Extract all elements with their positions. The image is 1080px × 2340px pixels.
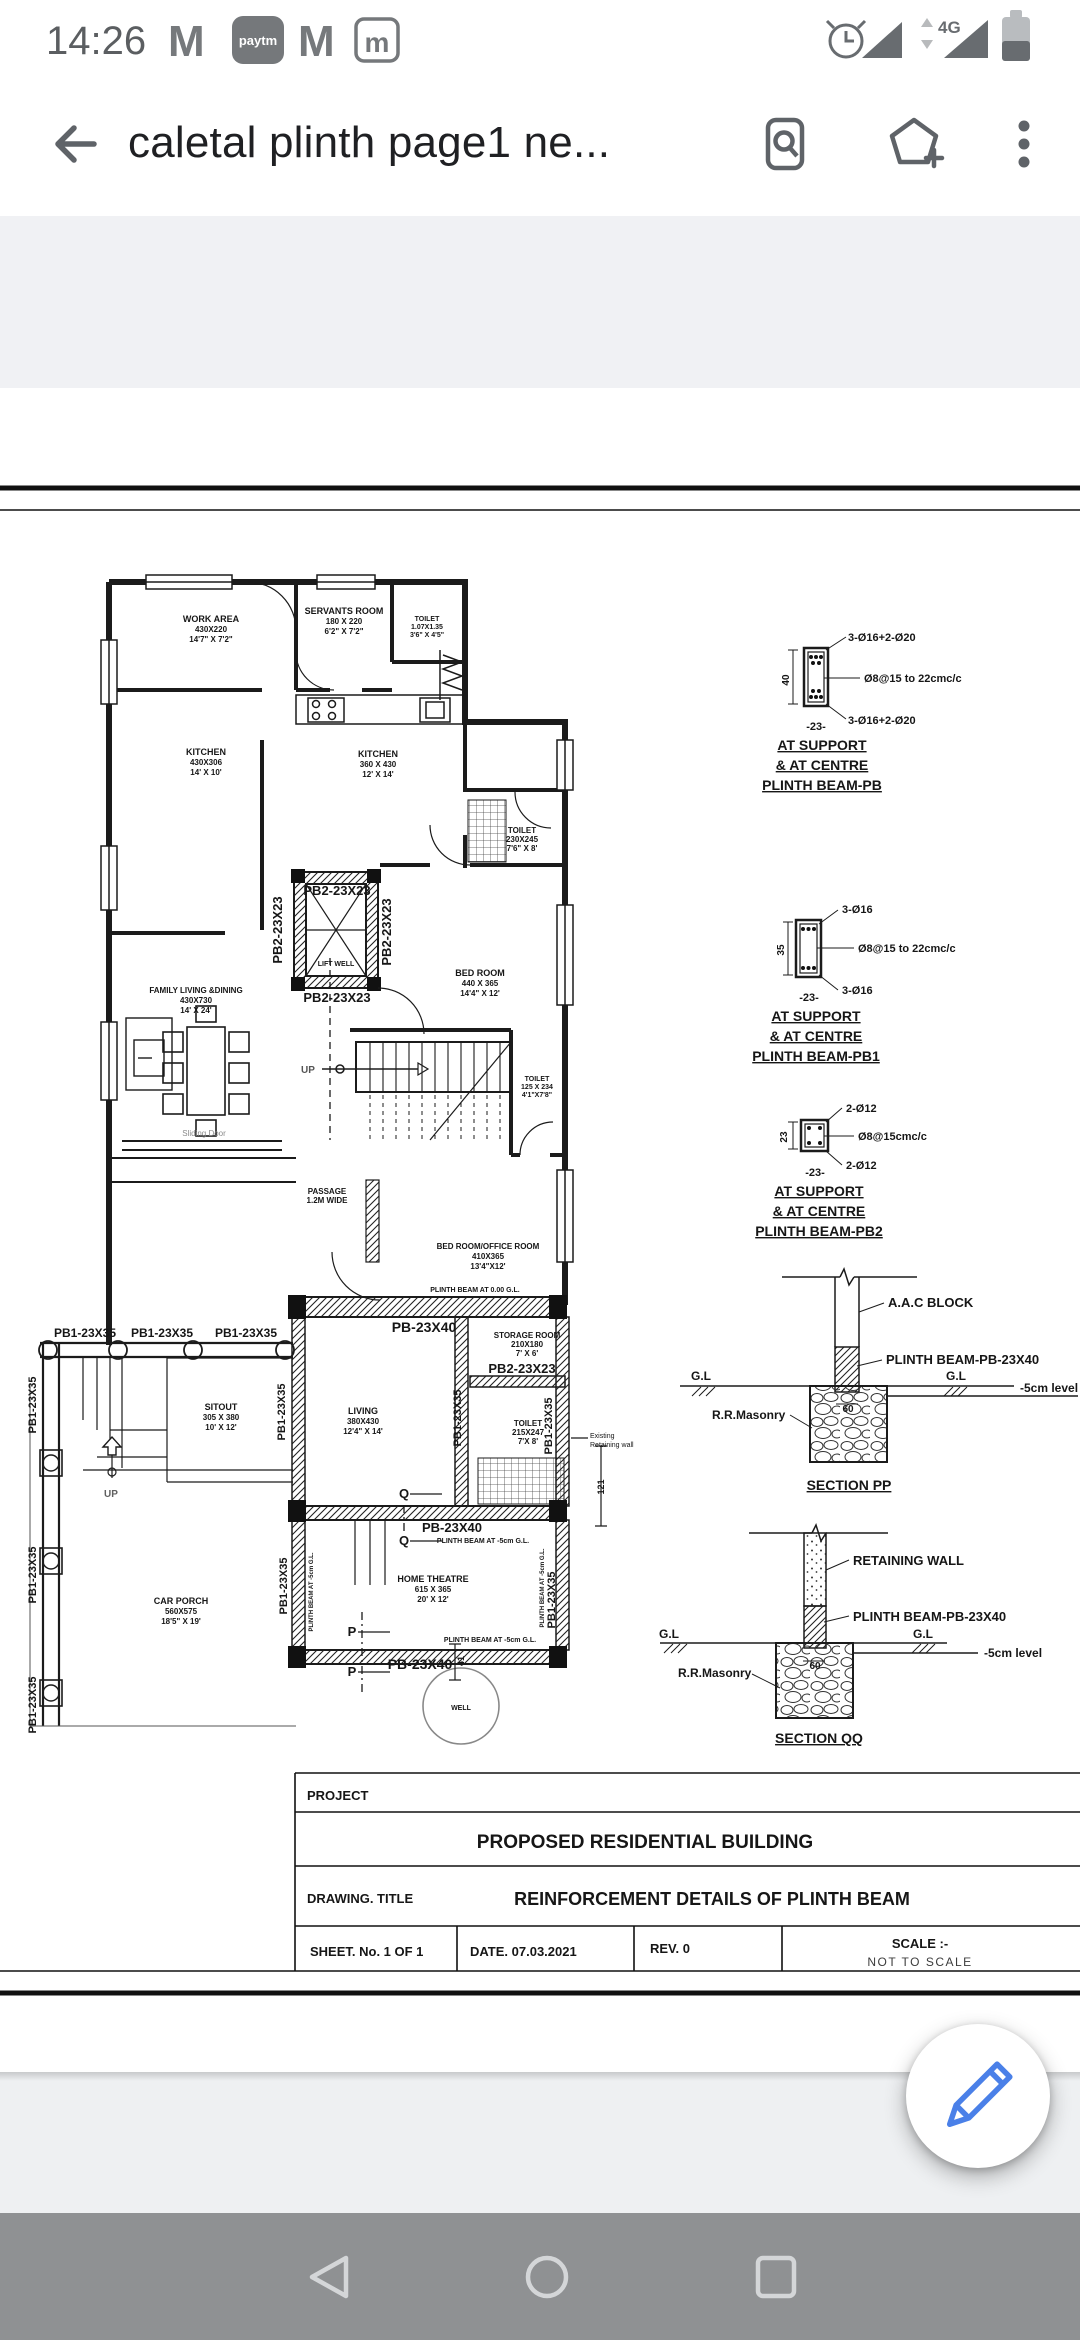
document-search-icon xyxy=(768,120,802,168)
drawing-label: -5cm level xyxy=(984,1646,1042,1660)
viewer-background-top xyxy=(0,216,1080,388)
drawing-label: LIFT WELL xyxy=(318,961,355,968)
find-in-document-button[interactable] xyxy=(756,114,816,174)
drawing-label: 560X575 xyxy=(165,1607,198,1616)
drawing-label: PLINTH BEAM AT 0.00 G.L. xyxy=(430,1287,520,1294)
document-title: caletal plinth page1 ne... xyxy=(128,118,610,168)
drawing-label: -23- xyxy=(806,721,826,733)
status-time: 14:26 xyxy=(46,19,146,63)
nav-recents-button[interactable] xyxy=(758,2258,794,2296)
drawing-label: 380X430 xyxy=(347,1417,380,1426)
drawing-label: 3-Ø16+2-Ø20 xyxy=(848,632,916,644)
phone-screen: 14:26 M paytm M m 4G caletal p xyxy=(0,0,1080,2340)
drawing-label: G.L xyxy=(946,1369,966,1383)
drawing-label: UP xyxy=(104,1489,118,1500)
drawing-label: 14' X 24' xyxy=(180,1006,211,1015)
drawing-label: 3-Ø16 xyxy=(842,985,873,997)
drawing-label: KITCHEN xyxy=(358,749,398,759)
shortcut-add-icon xyxy=(892,120,942,166)
status-bar: 14:26 M paytm M m 4G xyxy=(0,0,1080,72)
pencil-icon xyxy=(943,2064,1009,2130)
wash-unit xyxy=(126,1018,172,1090)
drawing-label: 430X220 xyxy=(195,625,228,634)
floor-plan-drawing: WORK AREA430X22014'7" X 7'2"SERVANTS ROO… xyxy=(0,388,1080,2072)
arrow-left-icon xyxy=(58,128,94,160)
drawing-label: PASSAGE xyxy=(308,1187,347,1196)
drawing-label: Ø8@15cmc/c xyxy=(858,1131,927,1143)
drawing-label: -23- xyxy=(799,992,819,1004)
drawing-label: 60 xyxy=(809,1661,821,1672)
drawing-label: 125 X 234 xyxy=(521,1084,553,1091)
drawing-label: PB1-23X35 xyxy=(452,1390,464,1447)
drawing-label: TOILET xyxy=(514,1419,542,1428)
drawing-label: 7'6" X 8' xyxy=(507,844,538,853)
drawing-label: 230X245 xyxy=(506,835,539,844)
drawing-label: CAR PORCH xyxy=(154,1596,209,1606)
drawing-label: 210X180 xyxy=(511,1340,544,1349)
drawing-label: FAMILY LIVING &DINING xyxy=(149,986,242,995)
drawing-label: 410X365 xyxy=(472,1252,505,1261)
drawing-label: 4'1"X7'8" xyxy=(522,1092,552,1099)
drawing-label: PLINTH BEAM-PB2 xyxy=(755,1223,883,1239)
drawing-label: Retaining wall xyxy=(590,1442,634,1449)
drawing-label: BED ROOM xyxy=(455,968,505,978)
drawing-label: 2-Ø12 xyxy=(846,1103,877,1115)
drawing-label: PLINTH BEAM AT -5cm G.L. xyxy=(309,1552,315,1631)
drawing-labels: WORK AREA430X22014'7" X 7'2"SERVANTS ROO… xyxy=(27,606,1078,1969)
drawing-label: PROJECT xyxy=(307,1788,368,1803)
add-shortcut-button[interactable] xyxy=(884,112,950,176)
drawing-label: STORAGE ROOM xyxy=(494,1331,561,1340)
stairs xyxy=(322,1042,511,1140)
drawing-label: PB2-23X23 xyxy=(303,883,370,898)
drawing-label: 12'4" X 14' xyxy=(343,1427,383,1436)
arrows-updown-icon xyxy=(921,18,933,49)
mail-badge-icon: m xyxy=(356,19,398,61)
nav-home-button[interactable] xyxy=(528,2258,566,2296)
drawing-label: SHEET. No. 1 OF 1 xyxy=(310,1944,423,1959)
network-type-label: 4G xyxy=(938,18,961,37)
drawing-label: 615 X 365 xyxy=(415,1585,452,1594)
drawing-label: RETAINING WALL xyxy=(853,1553,964,1568)
drawing-label: Q xyxy=(399,1533,409,1548)
drawing-label: P xyxy=(348,1624,357,1639)
drawing-label: -23- xyxy=(805,1167,825,1179)
paytm-icon: paytm xyxy=(232,16,284,64)
drawing-label: 1.07X1.35 xyxy=(411,624,443,631)
drawing-label: R.R.Masonry xyxy=(678,1666,752,1680)
drawing-label: WORK AREA xyxy=(183,614,240,624)
drawing-label: DRAWING. TITLE xyxy=(307,1891,413,1906)
overflow-menu-button[interactable] xyxy=(1002,114,1046,174)
drawing-label: 40 xyxy=(781,674,792,686)
drawing-label: PB1-23X35 xyxy=(215,1326,277,1340)
drawing-label: PB2-23X23 xyxy=(270,896,285,963)
drawing-label: NOT TO SCALE xyxy=(867,1955,972,1969)
gmail-icon: M xyxy=(168,17,205,66)
drawing-label: 7' X 6' xyxy=(516,1349,539,1358)
drawing-label: AT SUPPORT xyxy=(777,737,867,753)
drawing-label: R.R.Masonry xyxy=(712,1408,786,1422)
drawing-label: 13'4"X12' xyxy=(470,1262,505,1271)
drawing-label: P xyxy=(348,1664,357,1679)
drawing-label: PLINTH BEAM-PB-23X40 xyxy=(886,1352,1039,1367)
drawing-label: Sliding Door xyxy=(182,1129,226,1138)
drawing-label: Ø8@15 to 22cmc/c xyxy=(858,943,956,955)
drawing-label: LIVING xyxy=(348,1406,378,1416)
drawing-label: PB1-23X35 xyxy=(27,1377,39,1434)
drawing-label: PB1-23X35 xyxy=(276,1384,288,1441)
drawing-label: 60 xyxy=(842,1404,854,1415)
drawing-label: 18'5" X 19' xyxy=(161,1617,201,1626)
drawing-label: SCALE :- xyxy=(892,1936,948,1951)
drawing-label: SECTION QQ xyxy=(775,1730,863,1746)
drawing-label: 12' X 14' xyxy=(362,770,393,779)
drawing-label: PB1-23X35 xyxy=(278,1558,290,1615)
drawing-label: 3'6" X 4'5" xyxy=(410,632,444,639)
entry-steps xyxy=(83,1358,293,1482)
back-button[interactable] xyxy=(44,116,104,172)
drawing-label: TOILET xyxy=(525,1076,550,1083)
drawing-label: 7'X 8' xyxy=(518,1437,538,1446)
drawing-label: PB1-23X35 xyxy=(131,1326,193,1340)
sheet-border xyxy=(0,488,1080,1993)
drawing-label: 14'4" X 12' xyxy=(460,989,500,998)
drawing-label: PB-23X40 xyxy=(392,1319,457,1335)
drawing-label: 41 xyxy=(456,1656,466,1666)
drawing-label: Q xyxy=(399,1486,409,1501)
drawing-label: KITCHEN xyxy=(186,747,226,757)
drawing-label: 430X306 xyxy=(190,758,223,767)
drawing-label: SERVANTS ROOM xyxy=(305,606,384,616)
drawing-label: 23 xyxy=(779,1131,790,1143)
battery-icon xyxy=(1002,10,1030,61)
drawing-label: PB1-23X35 xyxy=(546,1572,558,1629)
drawing-label: PB2-23X23 xyxy=(379,898,394,965)
floor-plan xyxy=(30,575,607,1744)
drawing-label: 3-Ø16+2-Ø20 xyxy=(848,715,916,727)
nav-bar xyxy=(0,2213,1080,2340)
drawing-label: PLINTH BEAM-PB-23X40 xyxy=(853,1609,1006,1624)
signal-icon xyxy=(862,22,902,58)
drawing-label: Ø8@15 to 22cmc/c xyxy=(864,673,962,685)
drawing-label: & AT CENTRE xyxy=(773,1203,866,1219)
drawing-label: 10' X 12' xyxy=(205,1423,236,1432)
alarm-icon xyxy=(827,21,865,57)
drawing-label: PLINTH BEAM-PB xyxy=(762,777,882,793)
drawing-label: HOME THEATRE xyxy=(397,1574,468,1584)
drawing-label: G.L xyxy=(913,1627,933,1641)
drawing-label: REV. 0 xyxy=(650,1941,690,1956)
drawing-label: PB-23X40 xyxy=(422,1520,482,1535)
drawing-label: 20' X 12' xyxy=(417,1595,448,1604)
drawing-label: SITOUT xyxy=(205,1402,238,1412)
drawing-label: 180 X 220 xyxy=(326,617,363,626)
drawing-label: A.A.C BLOCK xyxy=(888,1295,974,1310)
drawing-label: G.L xyxy=(691,1369,711,1383)
drawing-label: PB1-23X35 xyxy=(543,1398,555,1455)
drawing-label: 305 X 380 xyxy=(203,1413,240,1422)
svg-text:paytm: paytm xyxy=(239,33,277,48)
drawing-label: REINFORCEMENT DETAILS OF PLINTH BEAM xyxy=(514,1889,910,1909)
drawing-label: PLINTH BEAM AT -5cm G.L. xyxy=(437,1538,529,1545)
gmail-icon-2: M xyxy=(298,17,335,66)
drawing-label: 430X730 xyxy=(180,996,213,1005)
drawing-label: UP xyxy=(301,1065,315,1076)
drawing-label: & AT CENTRE xyxy=(770,1028,863,1044)
drawing-label: TOILET xyxy=(415,616,440,623)
drawing-label: PROPOSED RESIDENTIAL BUILDING xyxy=(477,1832,813,1853)
drawing-label: PB1-23X35 xyxy=(54,1326,116,1340)
drawing-label: PB-23X40 xyxy=(388,1656,453,1672)
drawing-label: -5cm level xyxy=(1020,1381,1078,1395)
drawing-label: Existing xyxy=(590,1433,615,1440)
drawing-label: PLINTH BEAM AT -5cm G.L. xyxy=(540,1548,546,1627)
drawing-label: & AT CENTRE xyxy=(776,757,869,773)
drawing-label: AT SUPPORT xyxy=(771,1008,861,1024)
more-vert-icon xyxy=(1019,121,1030,168)
dining-table xyxy=(163,1006,249,1136)
drawing-label: 215X247 xyxy=(512,1428,545,1437)
drawing-label: SECTION PP xyxy=(807,1477,892,1493)
drawing-label: TOILET xyxy=(508,826,536,835)
drawing-label: PB1-23X35 xyxy=(27,1547,39,1604)
drawing-label: AT SUPPORT xyxy=(774,1183,864,1199)
drawing-label: WELL xyxy=(451,1705,472,1712)
drawing-label: PB1-23X35 xyxy=(27,1677,39,1734)
drawing-label: PB2-23X23 xyxy=(488,1361,555,1376)
drawing-label: BED ROOM/OFFICE ROOM xyxy=(437,1242,540,1251)
edit-fab-button[interactable] xyxy=(906,2024,1050,2168)
drawing-label: G.L xyxy=(659,1627,679,1641)
drawing-label: 440 X 365 xyxy=(462,979,499,988)
nav-back-button[interactable] xyxy=(312,2258,346,2296)
drawing-label: DATE. 07.03.2021 xyxy=(470,1944,577,1959)
drawing-label: PLINTH BEAM-PB1 xyxy=(752,1048,880,1064)
drawing-label: 6'2" X 7'2" xyxy=(325,627,364,636)
drawing-label: 121 xyxy=(596,1479,606,1494)
drawing-label: 3-Ø16 xyxy=(842,904,873,916)
drawing-label: 14'7" X 7'2" xyxy=(189,635,233,644)
drawing-label: 35 xyxy=(776,944,787,956)
pdf-page[interactable]: WORK AREA430X22014'7" X 7'2"SERVANTS ROO… xyxy=(0,388,1080,2072)
drawing-label: PB2-23X23 xyxy=(303,990,370,1005)
drawing-label: PLINTH BEAM AT -5cm G.L. xyxy=(444,1637,536,1644)
drawing-label: 1.2M WIDE xyxy=(307,1196,349,1205)
drawing-label: 2-Ø12 xyxy=(846,1160,877,1172)
drawing-label: 14' X 10' xyxy=(190,768,221,777)
svg-text:m: m xyxy=(365,27,390,58)
drawing-label: 360 X 430 xyxy=(360,760,397,769)
